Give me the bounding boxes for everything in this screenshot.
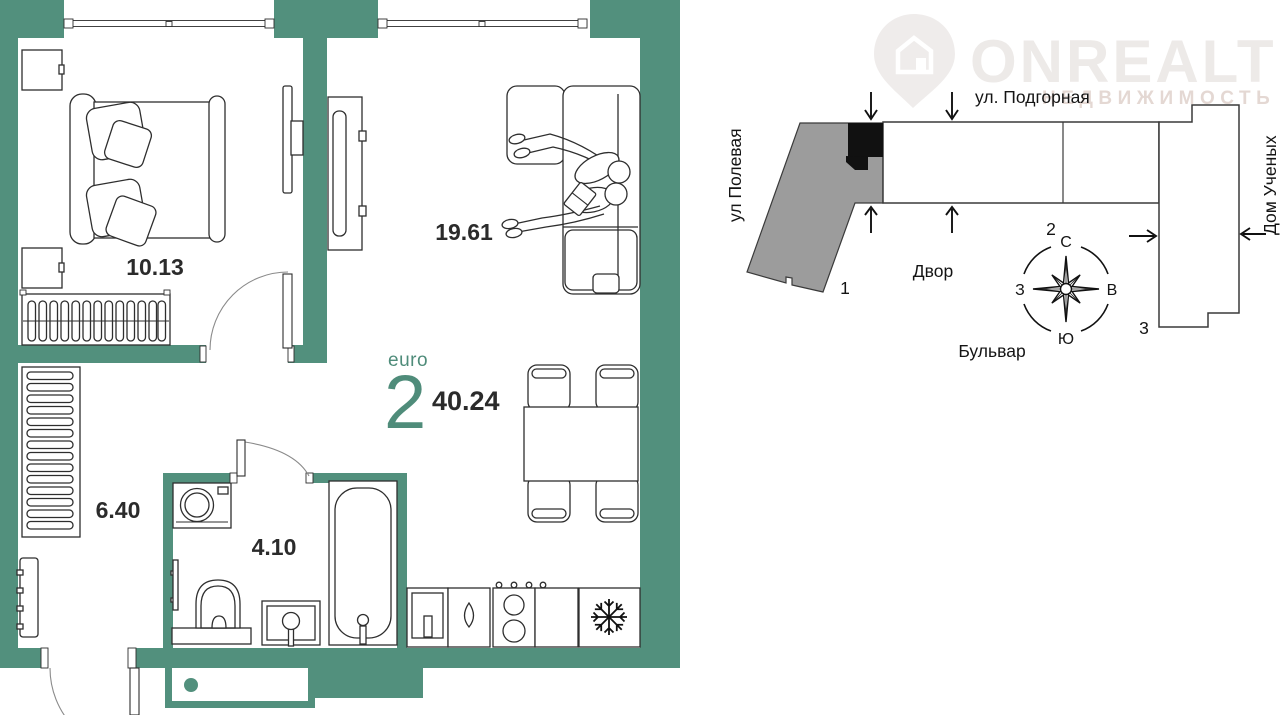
chair: [528, 365, 570, 411]
bath-area-label: 4.10: [252, 534, 297, 560]
tv-living: [328, 97, 366, 250]
bathtub: [329, 481, 397, 645]
street-label-left: ул Полевая: [725, 128, 745, 222]
dining-table: [524, 407, 638, 481]
window-2: [378, 19, 587, 28]
listing-image: ONREALT НЕДВИЖИМОСТЬ: [0, 0, 1280, 715]
compass-east: В: [1107, 282, 1118, 299]
courtyard-label: Двор: [913, 261, 953, 281]
entrance-arrow-right: [1129, 230, 1156, 242]
wardrobe: [22, 367, 80, 537]
building-1-number: 1: [840, 278, 850, 298]
compass-north: С: [1060, 234, 1072, 251]
bathroom-sink: [262, 601, 320, 646]
unit-rooms-number: 2: [384, 360, 426, 445]
corridor-dot: [184, 678, 198, 692]
shoe-cabinet: [17, 558, 38, 637]
nightstand-1: [22, 50, 64, 90]
dresser: [20, 290, 170, 345]
dishwasher-cabinet: [448, 588, 490, 647]
bed: [70, 94, 225, 248]
fridge: [579, 588, 640, 647]
sink-cabinet: [407, 588, 448, 647]
floor-plan: 10.13 19.61 6.40 4.10 euro 2 40.24: [0, 0, 680, 715]
unit-summary: euro 2 40.24: [384, 350, 500, 445]
building-3: [1159, 105, 1239, 327]
entrance-arrow-up: [865, 207, 877, 233]
toilet: [172, 580, 251, 644]
living-area-label: 19.61: [435, 219, 493, 245]
washing-machine: [173, 483, 231, 528]
chair: [528, 476, 570, 522]
compass-south: Ю: [1058, 331, 1074, 348]
tv-bedroom: [283, 86, 303, 193]
bedroom-area-label: 10.13: [126, 254, 184, 280]
house-pin-icon: [874, 14, 955, 108]
street-label-bottom: Бульвар: [958, 341, 1025, 361]
building-2-number: 2: [1046, 219, 1056, 239]
building-3-number: 3: [1139, 318, 1149, 338]
compass-west: З: [1015, 282, 1025, 299]
window-1: [64, 19, 274, 28]
nightstand-2: [22, 248, 64, 288]
entrance-arrow-down: [946, 92, 958, 119]
counter-cabinet: [535, 588, 578, 647]
hall-area-label: 6.40: [96, 497, 141, 523]
compass-rose: С Ю З В: [1015, 234, 1117, 348]
chair: [596, 476, 638, 522]
chair: [596, 365, 638, 411]
snowflake-icon: [591, 599, 627, 635]
site-map: С Ю З В ул. Подгорная ул Полевая Дом Уче…: [725, 87, 1280, 361]
unit-total-area: 40.24: [432, 386, 500, 416]
kitchen-counter: [407, 582, 640, 647]
building-2: [883, 122, 1159, 203]
entrance-arrow-down: [865, 92, 877, 119]
dining-set: [524, 365, 638, 522]
brand-name: ONREALT: [970, 28, 1277, 95]
entrance-arrow-up: [946, 207, 958, 233]
street-label-top: ул. Подгорная: [975, 87, 1090, 107]
bathroom-door: [230, 440, 313, 483]
house-label-right: Дом Ученых: [1260, 135, 1280, 235]
